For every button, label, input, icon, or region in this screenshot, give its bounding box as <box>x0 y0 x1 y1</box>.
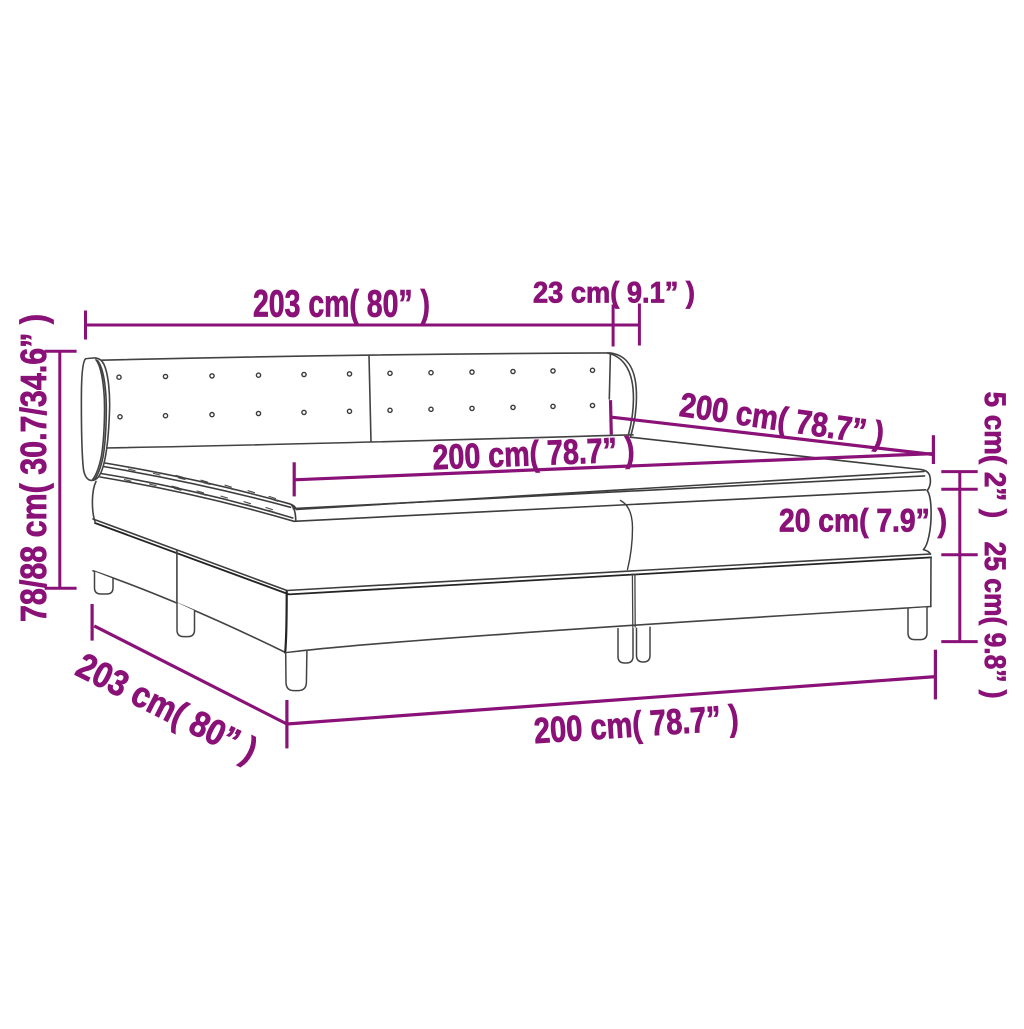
svg-text:5 cm( 2” ): 5 cm( 2” ) <box>978 392 1011 518</box>
svg-text:203 cm( 80” ): 203 cm( 80” ) <box>253 284 430 326</box>
svg-text:20 cm( 7.9” ): 20 cm( 7.9” ) <box>779 503 947 539</box>
svg-text:25 cm( 9.8” ): 25 cm( 9.8” ) <box>978 542 1011 699</box>
svg-text:78/88 cm( 30.7/34.6” ): 78/88 cm( 30.7/34.6” ) <box>13 314 54 622</box>
svg-text:200 cm( 78.7” ): 200 cm( 78.7” ) <box>432 430 635 477</box>
svg-text:23 cm( 9.1” ): 23 cm( 9.1” ) <box>533 276 695 309</box>
